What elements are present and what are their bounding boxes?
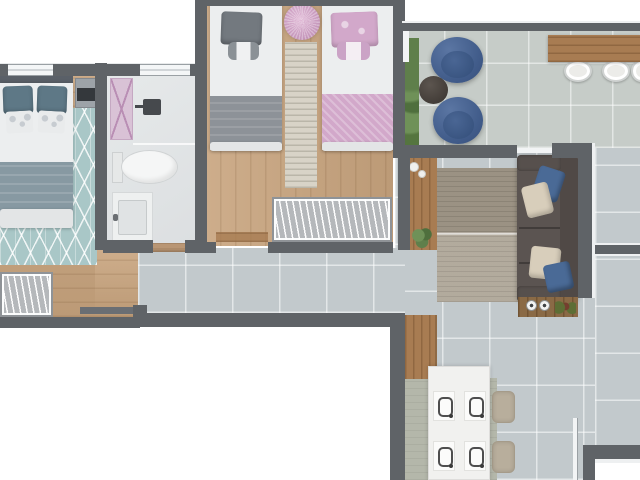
room-dining-area (390, 320, 595, 480)
wall (135, 313, 405, 327)
room-living-room (398, 140, 595, 320)
side-passage-floor (595, 148, 640, 448)
room-balcony (402, 21, 640, 158)
wall (595, 243, 640, 256)
room-kids-bedroom (205, 0, 405, 253)
floor-plan (0, 0, 640, 480)
room-bathroom (103, 63, 205, 253)
adjacent-room (595, 463, 640, 480)
room-corridor (135, 248, 405, 313)
